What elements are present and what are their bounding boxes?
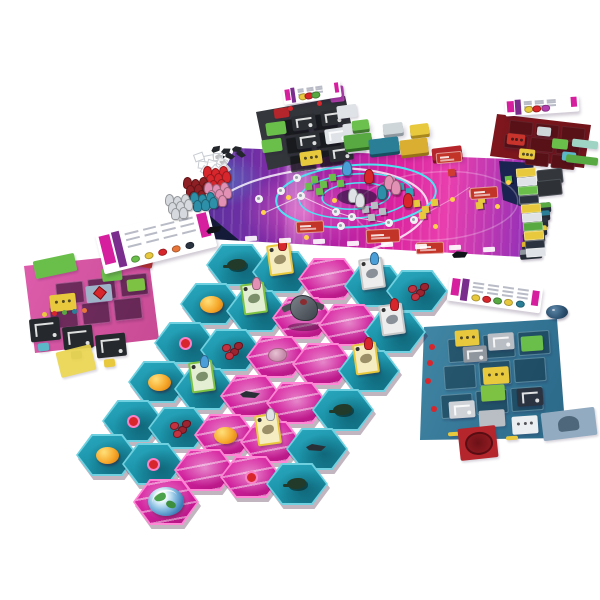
resource-cube — [413, 200, 421, 208]
component-tile — [487, 332, 514, 351]
strip-text-line — [128, 243, 142, 248]
strip-icon-dot — [171, 244, 181, 253]
planet-disc-token — [546, 305, 568, 319]
strip-icon-dot — [130, 254, 140, 263]
strip-text-line — [487, 288, 498, 292]
figure-mini — [364, 337, 373, 350]
figure-mini — [200, 355, 209, 368]
tile-pip — [55, 300, 58, 303]
reference-strip — [504, 94, 579, 116]
resource-cube — [448, 169, 456, 177]
meeple-mini — [218, 195, 227, 207]
bottom-track-dash — [245, 236, 257, 242]
strip-text-line — [473, 282, 484, 286]
resource-cube — [371, 202, 379, 210]
component-tile — [265, 121, 287, 137]
board-meeple — [364, 169, 374, 184]
tile-pip — [510, 137, 513, 140]
component-tile — [519, 148, 536, 160]
strip-text-line — [182, 229, 196, 234]
tile-pip — [519, 138, 522, 141]
component-tile — [513, 357, 547, 383]
strip-icon-dot — [470, 294, 480, 302]
bottom-track-dash — [449, 245, 461, 251]
component-tile — [85, 284, 113, 304]
card-deck — [382, 122, 403, 135]
component-tile — [457, 425, 498, 461]
component-tile — [462, 345, 487, 363]
board-dot — [286, 195, 291, 200]
skull-mark — [279, 189, 282, 192]
skull-mark — [350, 215, 353, 218]
strip-cap-right — [531, 290, 541, 306]
pieces-layer — [0, 0, 600, 600]
space-bar — [300, 228, 316, 231]
strip-text-line — [146, 238, 160, 243]
space-bar — [371, 237, 390, 240]
card-cost-icon — [355, 347, 360, 352]
skull-mark — [334, 210, 337, 213]
skull-space-icon — [410, 216, 418, 224]
space-bar — [420, 249, 436, 252]
tile-pip — [61, 300, 64, 303]
board-dot — [450, 197, 455, 202]
strip-text-line — [142, 225, 156, 230]
tile-circuit-path — [35, 322, 55, 337]
board-meeple — [377, 185, 387, 200]
tile-pip — [524, 422, 527, 425]
hazard-dot-icon — [179, 337, 192, 350]
meeple-mini — [179, 207, 188, 219]
card-deck — [399, 137, 429, 155]
edge-track-cell — [526, 247, 547, 257]
strip-cap-purple — [290, 88, 296, 103]
component-tile — [104, 358, 116, 367]
hex-tile-teal — [338, 350, 400, 392]
skull-space-icon — [297, 192, 305, 200]
planet-icon — [96, 447, 119, 464]
hazard-dot-icon — [147, 458, 160, 471]
component-tile — [443, 364, 477, 390]
board-meeple — [391, 180, 401, 195]
meeple-mini — [209, 197, 218, 209]
tile-circuit-path — [68, 330, 88, 345]
tile-pip — [460, 336, 463, 339]
hazard-dot-icon — [127, 415, 140, 428]
mech-mini-shadow — [288, 323, 320, 331]
board-dot — [431, 406, 437, 412]
strip-text-line — [486, 292, 497, 296]
component-tile — [552, 138, 569, 150]
resource-cube — [337, 180, 345, 188]
board-dot — [261, 210, 266, 215]
figure-mini — [370, 252, 379, 265]
disc-speckle — [552, 309, 555, 311]
strip-icon-dot — [541, 105, 550, 113]
bottom-track-dash — [483, 247, 495, 253]
strip-cap-right — [334, 83, 340, 93]
component-tile — [511, 415, 538, 435]
board-dot — [52, 311, 57, 316]
skull-mark — [257, 197, 260, 200]
strip-cap-purple — [515, 100, 521, 115]
tile-pip — [530, 422, 533, 425]
space-bar — [371, 234, 384, 237]
card-deck — [409, 123, 429, 136]
skull-space-icon — [277, 187, 285, 195]
strip-text-line — [162, 227, 176, 232]
board-dot — [317, 101, 322, 106]
hex-tile-teal — [312, 389, 374, 431]
resource-cube — [305, 183, 313, 191]
tile-circuit-node — [52, 332, 56, 336]
board-meeple — [342, 161, 352, 176]
strip-text-line — [516, 296, 527, 300]
strip-icon-dot — [144, 251, 154, 260]
component-tile — [38, 342, 50, 351]
strip-text-line — [124, 230, 138, 235]
planet-icon — [214, 427, 237, 444]
board-dot — [62, 310, 67, 315]
figure-mini — [252, 277, 261, 290]
board-dot — [72, 309, 77, 314]
component-tile — [113, 297, 143, 322]
hex-tile-teal — [266, 463, 328, 505]
board-dot — [429, 344, 435, 350]
strip-text-line — [160, 221, 174, 226]
card-creature-art — [273, 254, 286, 265]
resource-cube — [368, 214, 376, 222]
strip-text-line — [164, 234, 178, 239]
strip-icon-dot — [504, 299, 514, 307]
component-tile — [516, 387, 543, 407]
strip-text-line — [517, 288, 528, 292]
planet-icon — [148, 374, 171, 391]
component-tile — [540, 407, 597, 441]
resource-cube — [419, 212, 427, 220]
board-card-space — [296, 220, 325, 233]
card-cost-icon — [257, 418, 262, 423]
tile-circuit-node — [480, 355, 484, 359]
creature-icon-limb — [223, 265, 231, 268]
strip-text-line — [126, 236, 140, 241]
board-game-photo: Angled product photo of a sci-fi board g… — [0, 0, 600, 600]
creature-icon-limb — [283, 484, 291, 487]
reference-strip — [447, 275, 544, 314]
space-bar — [474, 194, 490, 197]
board-card-space — [470, 186, 499, 200]
board-dot — [506, 180, 511, 185]
board-dot — [42, 312, 47, 317]
card-creature-art — [359, 353, 372, 364]
figure-mini — [390, 298, 399, 311]
earth-hex-tile — [133, 479, 199, 525]
strip-text-line — [501, 294, 512, 298]
tile-pip — [466, 335, 469, 338]
strip-icon-dot — [311, 91, 321, 99]
strip-icon-dot — [493, 297, 503, 305]
card-creature-art — [195, 371, 208, 382]
component-tile — [521, 335, 544, 351]
strip-cap-right — [196, 212, 211, 238]
tile-pip — [310, 156, 313, 159]
strip-cap-magenta — [507, 101, 514, 113]
creature-icon-limb — [329, 410, 337, 413]
component-tile — [537, 126, 552, 136]
strip-icon-dot — [515, 300, 525, 308]
ghost-ship-art — [557, 414, 579, 432]
skull-space-icon — [293, 174, 301, 182]
card-cost-icon — [243, 287, 248, 292]
reference-strip — [95, 206, 218, 275]
board-dot — [82, 308, 87, 313]
card-cost-icon — [191, 365, 196, 370]
skull-space-icon — [255, 195, 263, 203]
skull-space-icon — [385, 219, 393, 227]
tile-pip — [315, 155, 318, 158]
card-creature-art — [247, 293, 260, 304]
component-tile — [95, 332, 127, 358]
tile-pip — [526, 152, 529, 155]
card-creature-art — [365, 268, 378, 279]
board-dot — [495, 204, 500, 209]
strip-text-line — [488, 284, 499, 288]
tile-circuit-node — [118, 348, 122, 352]
card-cost-icon — [269, 248, 274, 253]
card-deck — [351, 119, 369, 131]
tile-circuit-node — [313, 141, 318, 146]
skull-mark — [295, 176, 298, 179]
resource-cube — [316, 188, 324, 196]
tile-pip — [488, 373, 491, 376]
resource-cube — [476, 202, 484, 210]
component-tile — [454, 329, 479, 347]
strip-icon-dot — [481, 296, 491, 304]
resource-cube — [379, 208, 387, 216]
strip-text-line — [180, 223, 194, 228]
planet-icon — [200, 296, 223, 313]
card-creature-art — [261, 424, 274, 435]
component-tile — [55, 344, 96, 378]
skull-space-icon — [332, 208, 340, 216]
component-tile — [336, 104, 358, 120]
component-tile — [81, 301, 111, 326]
board-dot — [288, 106, 293, 111]
tile-pip — [472, 335, 475, 338]
board-dot — [425, 378, 431, 384]
mech-mini-cockpit — [300, 299, 307, 305]
skull-mark — [387, 221, 390, 224]
board-dot — [332, 198, 337, 203]
tile-circuit-node — [346, 154, 351, 159]
tile-pip — [530, 153, 533, 156]
pink-creature-mini — [268, 348, 287, 362]
skull-mark — [412, 218, 415, 221]
component-tile — [33, 253, 78, 279]
component-tile — [482, 366, 509, 385]
board-meeple — [403, 193, 413, 208]
earth-globe — [148, 487, 184, 516]
bottom-track-dash — [279, 238, 291, 244]
resource-cube — [311, 176, 319, 184]
earth-cloud-swirl — [150, 486, 181, 513]
strip-text-line — [517, 292, 528, 296]
component-tile — [448, 400, 475, 419]
component-tile — [480, 384, 505, 402]
space-bar — [300, 225, 310, 228]
component-tile — [29, 316, 61, 342]
board-dot — [433, 224, 438, 229]
tile-pip — [68, 299, 71, 302]
tile-circuit-path — [101, 338, 121, 353]
strip-icon-dot — [157, 248, 167, 257]
skull-space-icon — [337, 222, 345, 230]
strip-cap-purple — [460, 278, 470, 301]
board-meeple — [355, 193, 365, 208]
space-bar — [440, 158, 455, 161]
strip-text-line — [472, 286, 483, 290]
tile-pip — [522, 152, 525, 155]
tile-circuit-node — [467, 411, 471, 415]
tile-pip — [495, 373, 498, 376]
board-card-space — [436, 151, 463, 164]
component-tile — [126, 278, 145, 292]
card-deck — [368, 136, 400, 155]
card-dark-art — [464, 430, 495, 456]
strip-text-line — [502, 286, 513, 290]
red-gem-token — [93, 286, 107, 300]
skull-space-icon — [348, 213, 356, 221]
strip-cap-right — [570, 97, 577, 107]
tile-pip — [517, 423, 520, 426]
tile-circuit-node — [535, 399, 539, 403]
tile-pip — [515, 138, 518, 141]
board-dot — [427, 360, 433, 366]
tile-circuit-node — [309, 123, 314, 128]
skull-mark — [339, 224, 342, 227]
resource-cube — [431, 199, 439, 207]
tile-circuit-node — [506, 343, 510, 347]
ship-mini-large — [452, 250, 469, 258]
card-cost-icon — [381, 308, 386, 313]
bottom-track-dash — [381, 242, 393, 248]
figure-mini — [266, 408, 275, 421]
component-tile — [506, 133, 525, 146]
tile-pip — [304, 156, 307, 159]
card-creature-art — [385, 314, 398, 325]
component-tile — [506, 436, 518, 441]
strip-text-line — [144, 232, 158, 237]
bottom-track-dash — [347, 241, 359, 247]
hazard-dot-icon — [245, 471, 258, 484]
strip-text-line — [472, 290, 483, 294]
strip-text-line — [502, 290, 513, 294]
strip-icon-dot — [184, 241, 194, 250]
bottom-track-dash — [313, 239, 325, 245]
board-dot — [304, 235, 309, 240]
bottom-track-dash — [415, 244, 427, 250]
resource-cube — [329, 174, 337, 182]
card-cost-icon — [361, 262, 366, 267]
strip-cap-magenta — [450, 278, 461, 297]
component-tile — [261, 138, 283, 154]
skull-mark — [299, 194, 302, 197]
tile-pip — [501, 372, 504, 375]
